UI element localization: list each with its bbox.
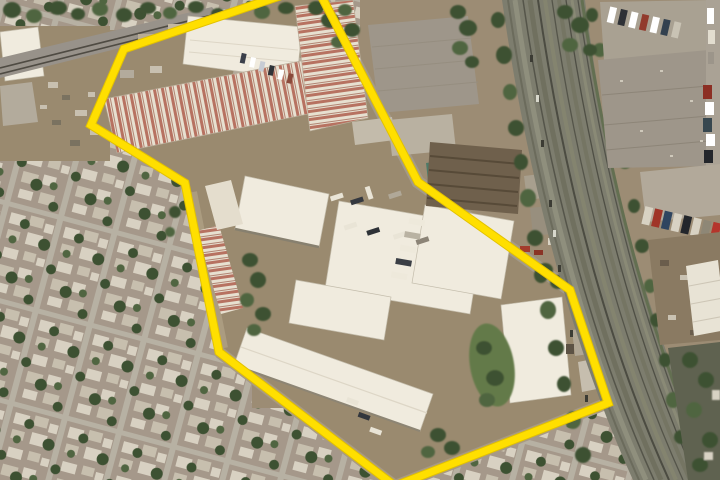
aerial-map-canvas[interactable]: [0, 0, 720, 480]
warehouse-roof: [0, 82, 38, 126]
concrete-pad: [640, 164, 720, 222]
satellite-image: [0, 0, 720, 480]
warehouse-roof: [598, 49, 720, 168]
